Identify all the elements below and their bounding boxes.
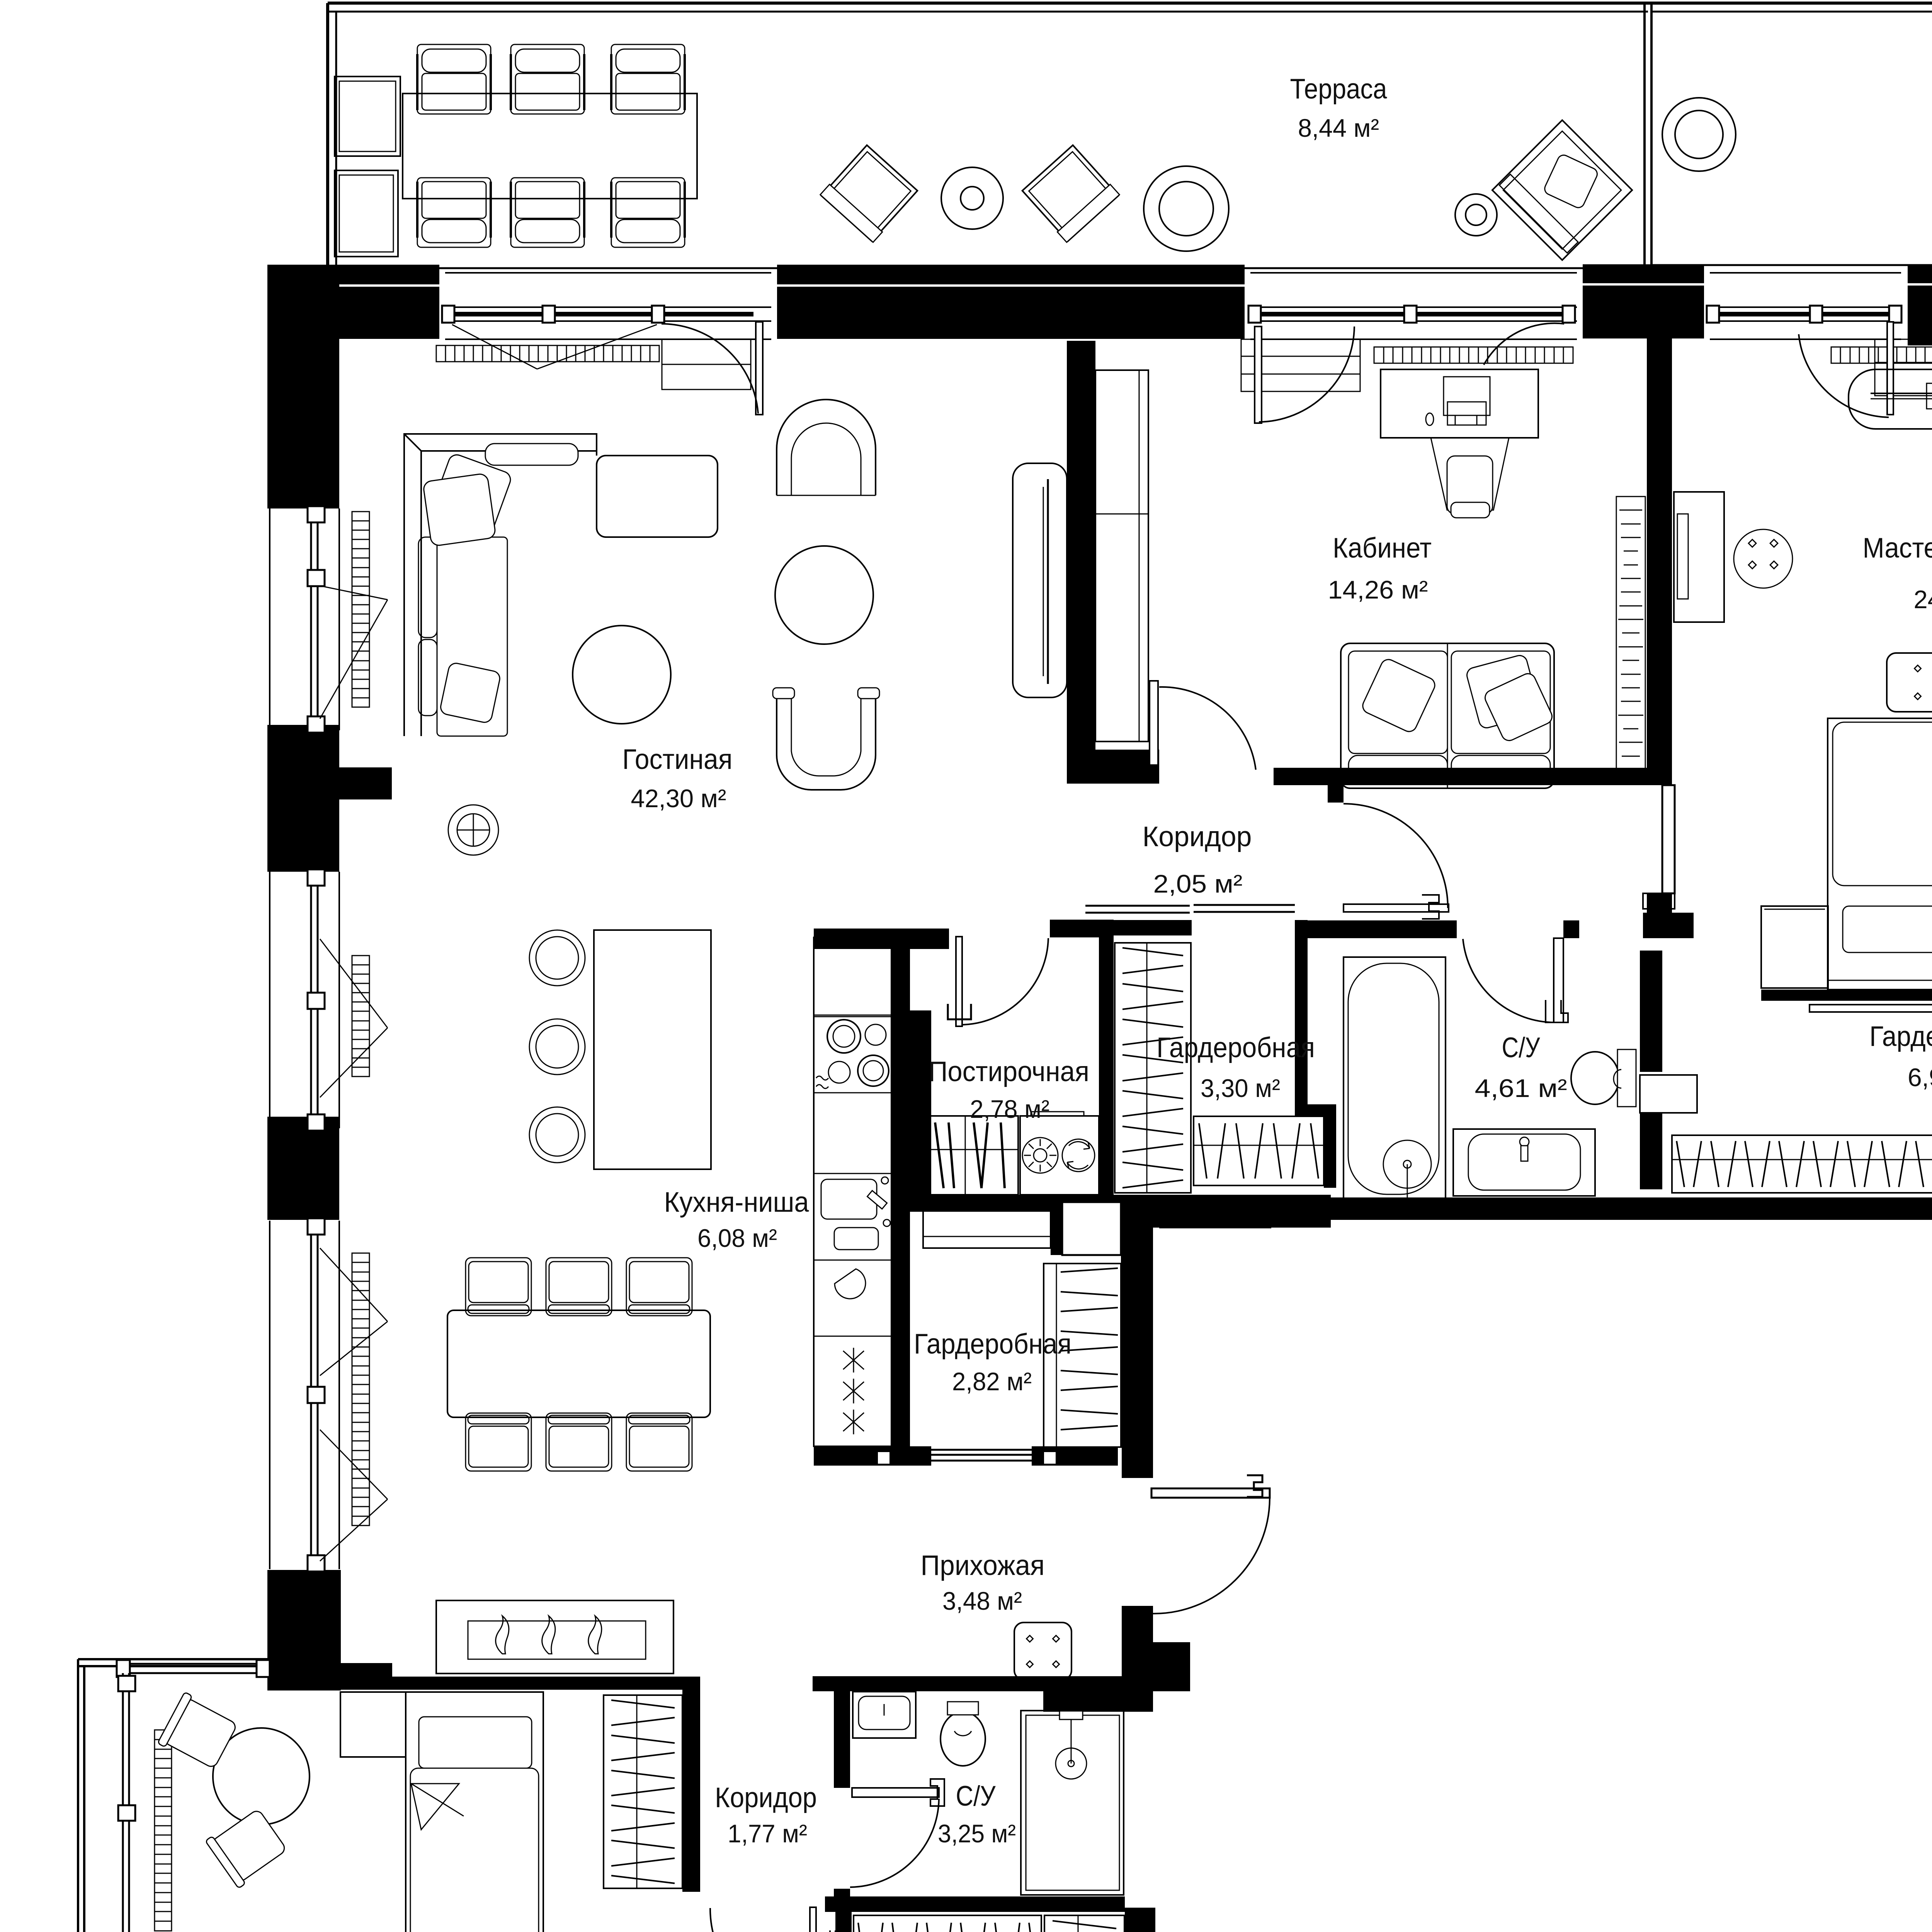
svg-text:42,30 м²: 42,30 м²	[631, 784, 726, 813]
svg-text:2,78 м²: 2,78 м²	[970, 1095, 1049, 1123]
svg-text:2,82 м²: 2,82 м²	[952, 1367, 1032, 1396]
svg-text:Гардеробная: Гардеробная	[914, 1328, 1071, 1360]
svg-text:Прихожая: Прихожая	[921, 1550, 1045, 1581]
svg-text:2,05 м²: 2,05 м²	[1153, 869, 1243, 898]
svg-text:3,30 м²: 3,30 м²	[1201, 1074, 1280, 1102]
svg-text:6,92 м²: 6,92 м²	[1908, 1063, 1932, 1092]
svg-text:Постирочная: Постирочная	[929, 1056, 1089, 1087]
svg-text:3,48 м²: 3,48 м²	[942, 1587, 1022, 1615]
svg-text:С/У: С/У	[956, 1781, 996, 1812]
svg-text:8,44 м²: 8,44 м²	[1298, 114, 1379, 142]
svg-text:Терраса: Терраса	[1290, 73, 1387, 105]
svg-text:24,53 м²: 24,53 м²	[1914, 585, 1932, 614]
svg-text:Коридор: Коридор	[1143, 821, 1252, 852]
svg-text:4,61 м²: 4,61 м²	[1475, 1074, 1567, 1102]
svg-text:1,77 м²: 1,77 м²	[728, 1819, 807, 1848]
svg-text:Коридор: Коридор	[715, 1782, 817, 1813]
svg-text:Кабинет: Кабинет	[1333, 532, 1432, 564]
svg-text:Гардеробная: Гардеробная	[1156, 1032, 1315, 1063]
svg-text:6,08 м²: 6,08 м²	[697, 1224, 777, 1252]
svg-text:Мастер-спальня: Мастер-спальня	[1863, 532, 1932, 564]
svg-text:С/У: С/У	[1502, 1032, 1541, 1063]
svg-text:Гардеробная: Гардеробная	[1869, 1021, 1932, 1052]
svg-text:Гостиная: Гостиная	[622, 744, 733, 775]
svg-text:3,25 м²: 3,25 м²	[938, 1819, 1016, 1848]
svg-text:Кухня-ниша: Кухня-ниша	[664, 1187, 809, 1218]
svg-text:14,26 м²: 14,26 м²	[1328, 575, 1428, 604]
